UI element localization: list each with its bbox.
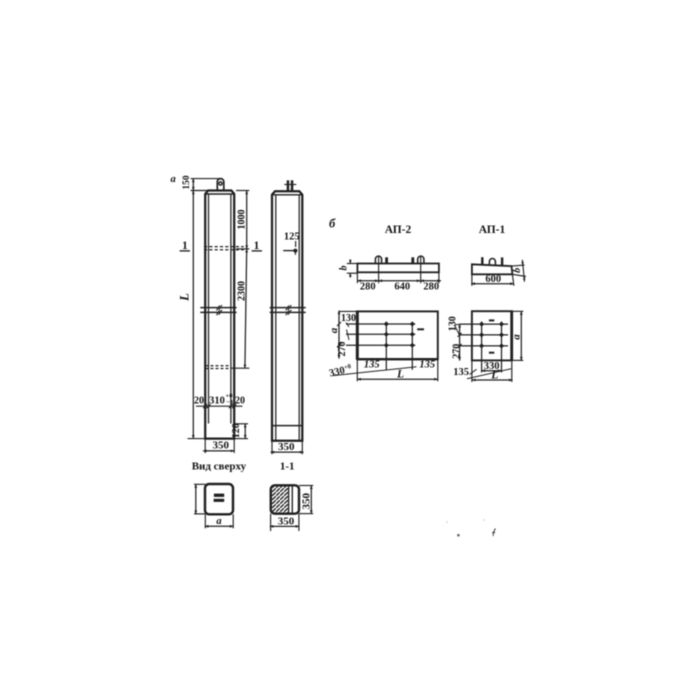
svg-text:135: 135 xyxy=(453,367,469,378)
svg-text:350: 350 xyxy=(278,441,295,453)
svg-text:L: L xyxy=(177,293,191,302)
svg-text:1000: 1000 xyxy=(237,210,248,230)
svg-text:150: 150 xyxy=(182,175,192,190)
svg-text:350: 350 xyxy=(278,515,295,527)
svg-text:1: 1 xyxy=(254,240,260,252)
svg-text:135: 135 xyxy=(419,360,435,371)
svg-text:АП-2: АП-2 xyxy=(385,224,412,236)
svg-text:L: L xyxy=(396,369,404,381)
svg-text:270: 270 xyxy=(337,342,348,357)
svg-text:1: 1 xyxy=(182,240,188,252)
svg-text:b: b xyxy=(512,267,524,273)
svg-text:600: 600 xyxy=(485,274,501,285)
svg-text:270: 270 xyxy=(451,344,462,359)
svg-text:−3: −3 xyxy=(226,399,234,406)
svg-text:b: b xyxy=(339,266,350,271)
svg-text:б: б xyxy=(329,216,336,230)
svg-text:2300: 2300 xyxy=(237,281,248,301)
svg-text:280: 280 xyxy=(360,281,376,292)
svg-text:20: 20 xyxy=(194,396,204,407)
svg-text:a: a xyxy=(511,334,523,340)
svg-text:1-1: 1-1 xyxy=(280,460,295,472)
svg-text:120: 120 xyxy=(231,423,242,438)
svg-text:a: a xyxy=(328,327,340,333)
svg-text:20: 20 xyxy=(235,396,245,407)
svg-text:280: 280 xyxy=(423,281,439,292)
svg-text:+0: +0 xyxy=(343,363,351,371)
svg-text:Вид сверху: Вид сверху xyxy=(192,460,247,472)
svg-text:a: a xyxy=(171,174,176,185)
svg-text:135: 135 xyxy=(364,360,380,371)
svg-text:125: 125 xyxy=(284,231,300,242)
svg-text:350: 350 xyxy=(301,493,313,510)
svg-text:L: L xyxy=(490,370,498,382)
svg-text:130: 130 xyxy=(341,313,356,324)
svg-text:310: 310 xyxy=(209,395,225,406)
svg-text:640: 640 xyxy=(394,281,410,292)
svg-text:350: 350 xyxy=(212,440,229,452)
svg-text:АП-1: АП-1 xyxy=(479,224,506,236)
svg-text:a: a xyxy=(216,516,221,527)
